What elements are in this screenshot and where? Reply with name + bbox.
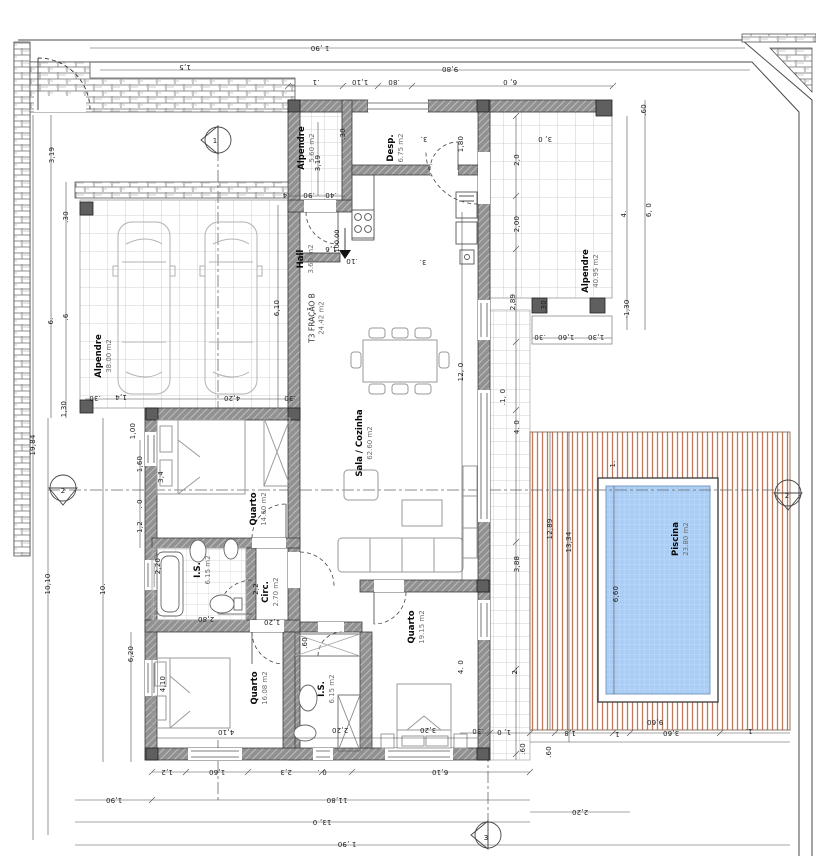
pool: [598, 478, 718, 702]
bedroom3-furniture: [381, 684, 467, 748]
bedroom1-furniture: [157, 418, 290, 494]
sofa-set: [338, 466, 477, 572]
bedroom2-furniture: [152, 658, 230, 728]
entry-porch-paving: [300, 112, 342, 200]
dining-table: [351, 328, 449, 394]
kitchen: [352, 175, 477, 264]
level-marker: [339, 228, 351, 259]
east-path-paving: [490, 310, 530, 760]
bathroom1-fixtures: [152, 539, 246, 620]
floor-plan-drawing: [0, 0, 816, 856]
bathroom2-fixtures: [294, 634, 360, 751]
floor-plan-sheet: 1 ,909,80.11,10.806, 01,53, 02,02,002,89…: [0, 0, 816, 856]
